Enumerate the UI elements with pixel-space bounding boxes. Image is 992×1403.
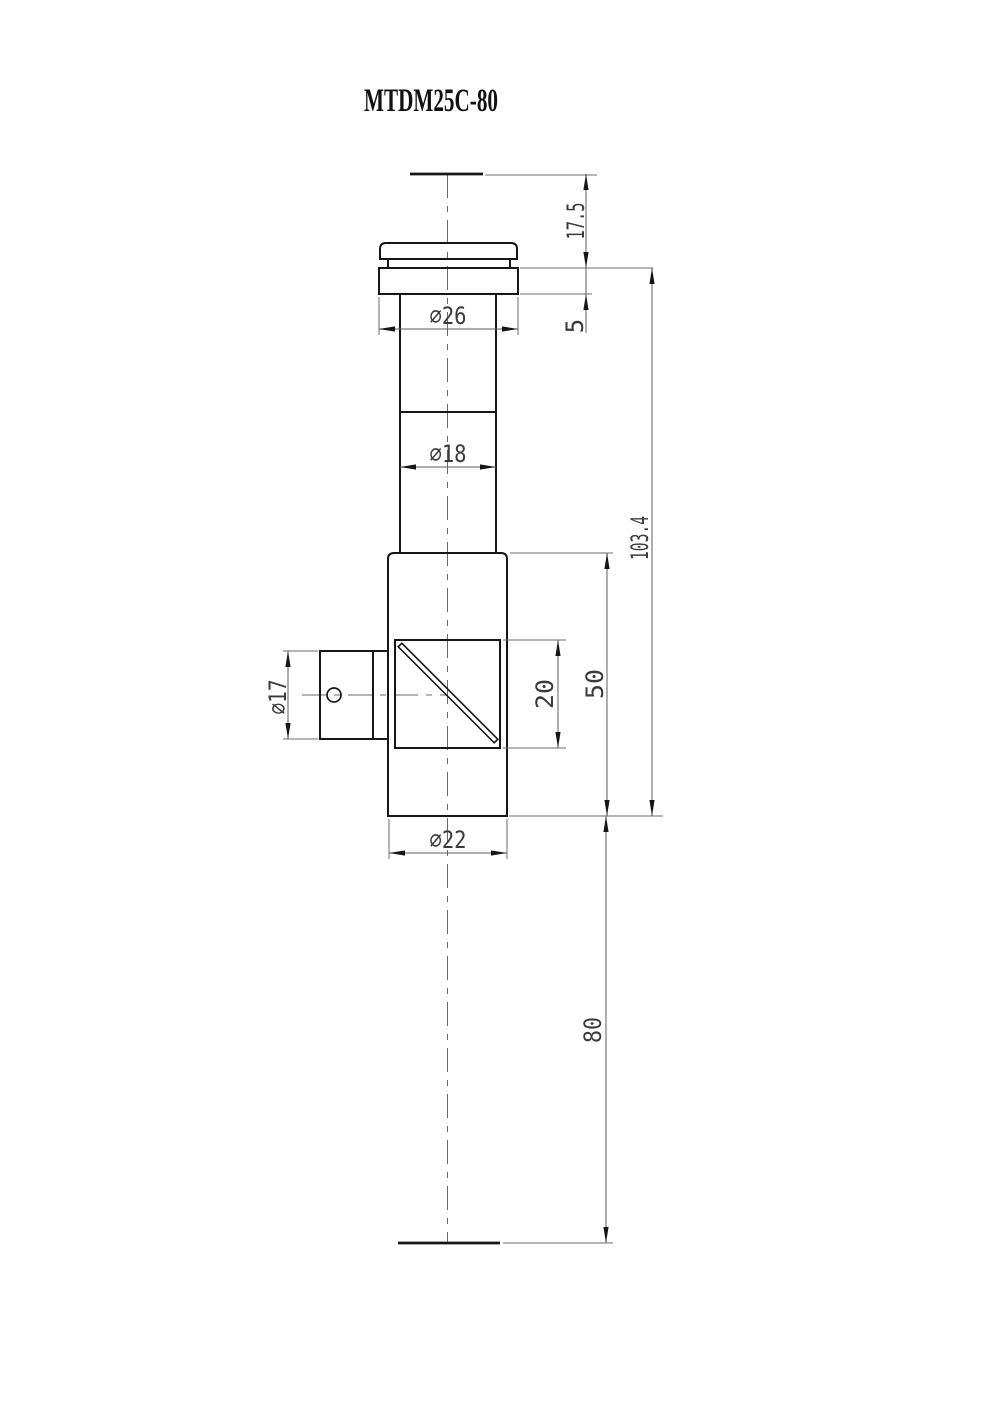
dim-label-phi18: ⌀18: [430, 440, 467, 468]
arrowhead-down-icon: [285, 723, 290, 739]
arrowhead-up-icon: [285, 651, 290, 667]
arrowhead-up-icon: [555, 640, 560, 656]
dim-label-20: 20: [531, 679, 559, 709]
arrowhead-right-icon: [480, 464, 496, 469]
arrowhead-left-icon: [379, 326, 395, 331]
flange-outline: [379, 268, 518, 294]
dim-overall-length: 103.4: [626, 268, 655, 816]
centerlines: [302, 174, 448, 1243]
dim-tube-diameter: ⌀18: [400, 440, 496, 470]
arrowhead-up-icon: [604, 553, 609, 569]
dim-label-phi17: ⌀17: [264, 680, 292, 715]
dim-label-80: 80: [579, 1017, 607, 1043]
top-cap-outline: [380, 243, 517, 259]
arrowhead-up-icon: [603, 816, 608, 832]
technical-drawing: MTDM25C-80: [0, 0, 992, 1403]
arrowhead-right-icon: [502, 326, 518, 331]
dim-label-5: 5: [561, 319, 589, 333]
arrowhead-down-icon: [603, 1227, 608, 1243]
dim-label-103-4: 103.4: [626, 516, 654, 560]
dim-flange-thickness: 5: [561, 294, 589, 333]
arrowhead-left-icon: [400, 464, 416, 469]
dim-body-length: 50: [581, 553, 610, 816]
arrowhead-left-icon: [389, 850, 405, 855]
dim-label-phi26: ⌀26: [430, 302, 467, 330]
cap-ring-band: [388, 259, 510, 268]
dim-label-phi22: ⌀22: [430, 826, 467, 854]
dim-label-17-5: 17.5: [562, 203, 590, 240]
drawing-title: MTDM25C-80: [364, 83, 498, 119]
dim-prism-aperture: 20: [531, 640, 561, 748]
arrowhead-down-icon: [649, 800, 654, 816]
dim-label-50: 50: [581, 669, 609, 699]
arrowhead-right-icon: [491, 850, 507, 855]
part-outline: [320, 174, 518, 1243]
arrowhead-up-icon: [583, 174, 588, 190]
arrowhead-down-icon: [583, 252, 588, 268]
arrowhead-up-icon: [583, 294, 588, 310]
dim-body-diameter: ⌀22: [389, 826, 507, 856]
arrowhead-up-icon: [649, 268, 654, 284]
dim-side-port-diameter: ⌀17: [264, 651, 292, 739]
arrowhead-down-icon: [555, 732, 560, 748]
arrowhead-down-icon: [604, 800, 609, 816]
dim-lower-extension: 80: [579, 816, 609, 1243]
drawing-sheet: MTDM25C-80: [0, 0, 992, 1403]
